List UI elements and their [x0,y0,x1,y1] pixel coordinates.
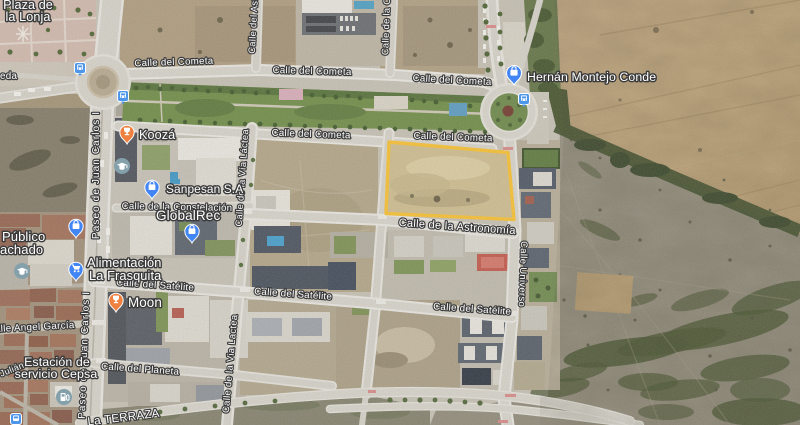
svg-text:eda: eda [0,71,17,82]
svg-text:la Lonja: la Lonja [6,10,51,24]
svg-text:Calle Universo: Calle Universo [516,241,529,307]
svg-text:La Frasquita: La Frasquita [89,268,162,283]
svg-text:GlobalRec: GlobalRec [156,208,220,223]
svg-text:achado: achado [0,242,43,257]
svg-text:Hernán Montejo Conde: Hernán Montejo Conde [527,70,656,84]
svg-text:Paseo de Juan Carlos I: Paseo de Juan Carlos I [91,111,102,239]
svg-text:servicio Cepsa: servicio Cepsa [15,367,98,381]
svg-text:Moon: Moon [128,295,162,310]
svg-text:Sanpesan S.A: Sanpesan S.A [166,182,243,196]
svg-text:Koozá: Koozá [139,128,175,142]
svg-text:Calle del Cometa: Calle del Cometa [272,65,352,78]
